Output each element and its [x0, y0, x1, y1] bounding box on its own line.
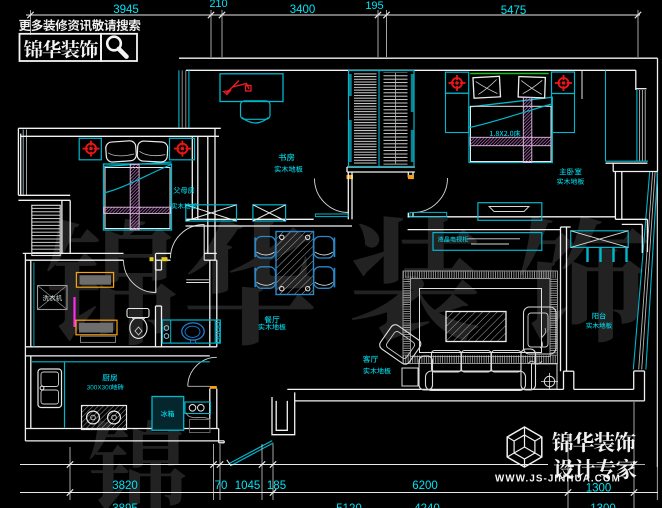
svg-text:3400: 3400	[290, 4, 316, 16]
svg-text:4240: 4240	[414, 503, 440, 508]
svg-text:185: 185	[267, 480, 286, 492]
svg-text:5120: 5120	[336, 503, 362, 508]
svg-text:3945: 3945	[113, 4, 139, 16]
svg-text:300X300: 300X300	[87, 385, 113, 392]
svg-text:3895: 3895	[112, 503, 138, 508]
svg-text:195: 195	[365, 0, 383, 12]
svg-text:3820: 3820	[112, 480, 138, 492]
svg-text:WWW.JS-JINHUA.COM: WWW.JS-JINHUA.COM	[495, 474, 621, 485]
svg-text:210: 210	[209, 0, 227, 10]
svg-text:70: 70	[215, 480, 228, 492]
svg-text:5475: 5475	[501, 5, 527, 17]
svg-text:6200: 6200	[412, 480, 438, 492]
svg-text:1300: 1300	[590, 503, 616, 508]
svg-text:1045: 1045	[235, 480, 261, 492]
